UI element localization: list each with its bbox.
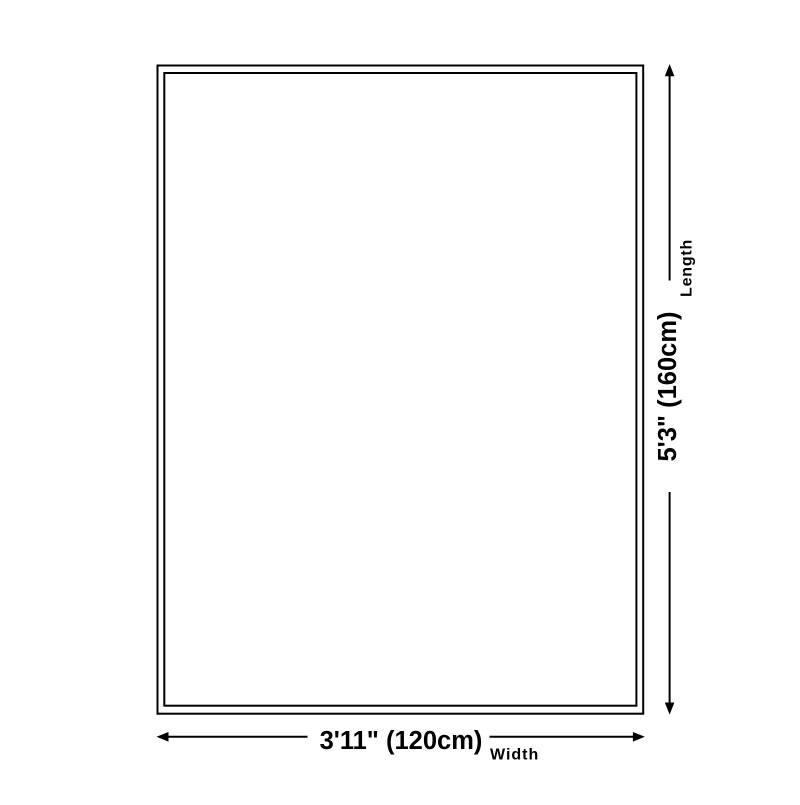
svg-text:Width: Width <box>490 746 539 763</box>
svg-text:5'3" (160cm): 5'3" (160cm) <box>654 312 682 462</box>
svg-text:Length: Length <box>679 239 696 297</box>
svg-text:3'11" (120cm): 3'11" (120cm) <box>320 727 483 755</box>
